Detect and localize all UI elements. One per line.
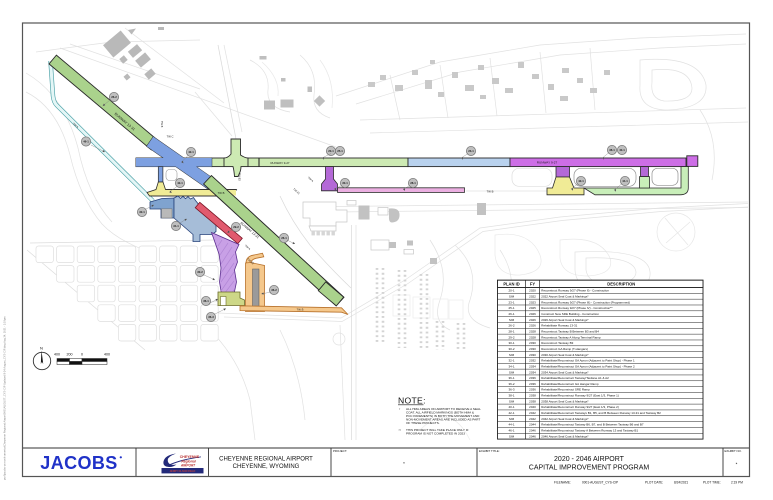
svg-text:36-2: 36-2 (271, 288, 277, 292)
svg-text:200: 200 (67, 353, 73, 357)
svg-text:Rehabilitate Runway 13-31: Rehabilitate Runway 13-31 (541, 324, 577, 328)
svg-text:2030: 2030 (529, 353, 536, 357)
svg-text:32-1: 32-1 (508, 359, 514, 363)
svg-text:Rehabilitate/Reconstruct Taxiw: Rehabilitate/Reconstruct Taxiway A Betwe… (541, 429, 638, 433)
svg-text:Rehabilitate/Reconstruct GA Ha: Rehabilitate/Reconstruct GA Hangar Ramp (541, 382, 599, 386)
svg-text:30-2: 30-2 (197, 270, 203, 274)
svg-text:23-1: 23-1 (508, 300, 514, 304)
svg-text:2042 Airport Seal Coat & Marki: 2042 Airport Seal Coat & Markings* (541, 417, 589, 421)
svg-text:2030: 2030 (529, 341, 536, 345)
svg-text:Rehabilitate/Reconstruct GA Ap: Rehabilitate/Reconstruct GA Apron (Adjac… (541, 364, 635, 368)
svg-text:400: 400 (54, 353, 60, 357)
svg-text:46-1: 46-1 (83, 140, 89, 144)
svg-text:42-1: 42-1 (177, 181, 183, 185)
svg-text:26-2: 26-2 (508, 324, 514, 328)
svg-text:PLOT DATE:: PLOT DATE: (645, 481, 663, 485)
svg-text:30-2: 30-2 (508, 347, 514, 351)
svg-text:CHEYENNE REGIONAL AIRPORT: CHEYENNE REGIONAL AIRPORT (219, 457, 313, 463)
svg-text:Reconstruct Runway 9/27 (Phase: Reconstruct Runway 9/27 (Phase IV) - Con… (541, 306, 613, 310)
svg-text:S/M: S/M (509, 370, 515, 374)
svg-text:DESCRIPTION: DESCRIPTION (607, 281, 635, 286)
svg-text:30-1: 30-1 (342, 181, 348, 185)
svg-text:2034: 2034 (529, 370, 536, 374)
svg-text:30-1: 30-1 (508, 341, 514, 345)
svg-text:PROGRAM IS NOT COMPLETED IN 20: PROGRAM IS NOT COMPLETED IN 2023 (406, 431, 465, 435)
svg-text:2036: 2036 (529, 382, 536, 386)
svg-text:TW B3: TW B3 (238, 173, 241, 181)
svg-text:RUNWAY 9-27: RUNWAY 9-27 (270, 161, 289, 165)
svg-text:CHEYENNE: CHEYENNE (180, 455, 200, 459)
svg-text:TW B: TW B (487, 189, 494, 193)
svg-text:Rehabilitate/Reconstruct GA Ap: Rehabilitate/Reconstruct GA Apron (Adjac… (541, 359, 635, 363)
svg-text:2030: 2030 (529, 347, 536, 351)
svg-text:2020 - 2046 AIRPORT: 2020 - 2046 AIRPORT (554, 456, 625, 463)
svg-text:34-1: 34-1 (508, 364, 514, 368)
svg-text:42-1: 42-1 (508, 411, 514, 415)
svg-text:Reconstruct GA Ramp (T-Hangars: Reconstruct GA Ramp (T-Hangars) (541, 347, 588, 351)
svg-text:28-1: 28-1 (410, 181, 416, 185)
svg-text:FY: FY (530, 281, 536, 286)
svg-text:44-1: 44-1 (508, 423, 514, 427)
svg-text:2042: 2042 (529, 417, 536, 421)
svg-text:JACOBS: JACOBS (40, 453, 117, 473)
svg-text:2020: 2020 (529, 289, 536, 293)
svg-text:26-2: 26-2 (111, 95, 117, 99)
svg-text:40-1: 40-1 (619, 148, 625, 152)
svg-text:0: 0 (81, 353, 83, 357)
svg-text:38-1: 38-1 (508, 394, 514, 398)
svg-text:PLAN ID: PLAN ID (503, 281, 519, 286)
svg-text:0001-AUGUST_CYS-CIP: 0001-AUGUST_CYS-CIP (582, 481, 618, 485)
svg-text:Rehabilitate/Reconstruct Taxiw: Rehabilitate/Reconstruct Taxiway B6, B7,… (541, 423, 644, 427)
svg-text:2:19 PM: 2:19 PM (731, 481, 743, 485)
svg-text:26-1: 26-1 (281, 236, 287, 240)
svg-text:JERRY OLSON FIELD: JERRY OLSON FIELD (170, 470, 196, 473)
svg-text:2046: 2046 (529, 434, 536, 438)
svg-text:2022 Airport Seal Coat & Marki: 2022 Airport Seal Coat & Markings* (541, 294, 589, 298)
svg-text:2026: 2026 (529, 324, 536, 328)
svg-text:2038: 2038 (529, 394, 536, 398)
svg-text:EXHIBIT NO.: EXHIBIT NO. (725, 449, 742, 453)
svg-text:CAPITAL IMPROVEMENT PROGRAM: CAPITAL IMPROVEMENT PROGRAM (529, 465, 650, 472)
svg-text:Reconstruct Taxiway A Along Te: Reconstruct Taxiway A Along Terminal Ram… (541, 335, 601, 339)
svg-text:2026: 2026 (529, 318, 536, 322)
svg-text:2042: 2042 (529, 411, 536, 415)
svg-text:36-3: 36-3 (208, 315, 214, 319)
svg-text:N: N (40, 346, 43, 351)
svg-text:PLOT TIME:: PLOT TIME: (703, 481, 721, 485)
svg-text:20-1: 20-1 (328, 149, 334, 153)
svg-text:TW B: TW B (160, 121, 163, 128)
svg-text:PROJECT:: PROJECT: (333, 449, 347, 453)
svg-text:TW C: TW C (167, 135, 174, 139)
svg-text:2040: 2040 (529, 405, 536, 409)
svg-text:Rehabilitate/Reconstruct Runwa: Rehabilitate/Reconstruct Runway 9/27 (Ea… (541, 394, 619, 398)
svg-text:*: * (736, 462, 738, 467)
svg-text:2034 Airport Seal Coat & Marki: 2034 Airport Seal Coat & Markings* (541, 370, 589, 374)
svg-text:Construct New SRE Building - C: Construct New SRE Building - Constructio… (541, 312, 599, 316)
svg-text:2028: 2028 (529, 329, 536, 333)
svg-text:26-1: 26-1 (508, 312, 514, 316)
svg-text:S/M: S/M (509, 434, 515, 438)
svg-text:2038: 2038 (529, 399, 536, 403)
svg-text:TW B: TW B (218, 191, 225, 195)
svg-text:NOTE:: NOTE: (398, 396, 426, 406)
svg-text:2030 Airport Seal Coat & Marki: 2030 Airport Seal Coat & Markings* (541, 353, 589, 357)
svg-text:25-1: 25-1 (508, 306, 514, 310)
svg-text:40-1: 40-1 (508, 405, 514, 409)
svg-text:32-1: 32-1 (139, 210, 145, 214)
svg-text:36-2: 36-2 (508, 382, 514, 386)
svg-text:2046: 2046 (529, 429, 536, 433)
svg-text:20-1: 20-1 (508, 289, 514, 293)
svg-text:36-1: 36-1 (508, 376, 514, 380)
svg-text:8/24/2021: 8/24/2021 (674, 481, 688, 485)
svg-text:2046 Airport Seal Coat & Marki: 2046 Airport Seal Coat & Markings* (541, 434, 589, 438)
svg-text:EXHIBIT TITLE:: EXHIBIT TITLE: (479, 449, 500, 453)
svg-text:AIRPORT: AIRPORT (180, 464, 196, 468)
svg-text:S/M: S/M (509, 294, 515, 298)
svg-text:Reconstruct Taxiway B Between: Reconstruct Taxiway B Between B3 and B4 (541, 329, 599, 333)
svg-text:Rehabilitate/Reconstruct SRE R: Rehabilitate/Reconstruct SRE Ramp (541, 388, 590, 392)
svg-text:TW B: TW B (297, 307, 304, 311)
svg-text:44-1: 44-1 (622, 179, 628, 183)
svg-text:S/M: S/M (509, 318, 515, 322)
svg-text:23-1: 23-1 (468, 149, 474, 153)
svg-text:pw:\\jacobs-us-north-america\C: pw:\\jacobs-us-north-america\Cheyenne Re… (3, 316, 7, 480)
svg-text:Reconstruct Runway 9/27 (Phase: Reconstruct Runway 9/27 (Phase III) - Co… (541, 300, 630, 304)
svg-text:36-1: 36-1 (203, 299, 209, 303)
svg-text:36-3: 36-3 (508, 388, 514, 392)
svg-text:34-1: 34-1 (173, 224, 179, 228)
svg-text:2036: 2036 (529, 376, 536, 380)
svg-text:28-1: 28-1 (508, 329, 514, 333)
svg-text:2026 Airport Seal Coat & Marki: 2026 Airport Seal Coat & Markings* (541, 318, 589, 322)
svg-text:Rehabilitate/Reconstruct Runwa: Rehabilitate/Reconstruct Runway 9/27 (Ea… (541, 405, 619, 409)
svg-text:Reconstruct Runway 9/27 (Phase: Reconstruct Runway 9/27 (Phase II) - Con… (541, 289, 609, 293)
svg-text:FILENAME:: FILENAME: (554, 481, 571, 485)
svg-text:42-1: 42-1 (188, 150, 194, 154)
svg-text:S/M: S/M (509, 399, 515, 403)
svg-text:29-2: 29-2 (233, 225, 239, 229)
svg-text:Reconstruct Taxiway B3: Reconstruct Taxiway B3 (541, 341, 573, 345)
svg-text:2023: 2023 (529, 300, 536, 304)
svg-text:2028: 2028 (529, 335, 536, 339)
svg-text:CHEYENNE, WYOMING: CHEYENNE, WYOMING (233, 464, 300, 470)
svg-text:2022: 2022 (529, 294, 536, 298)
svg-text:S/M: S/M (509, 353, 515, 357)
svg-text:Rehabilitate/Reconstruct Taxiw: Rehabilitate/Reconstruct Taxiway/Taxilan… (541, 376, 609, 380)
svg-text:2034: 2034 (529, 364, 536, 368)
svg-text:400: 400 (104, 353, 110, 357)
svg-text:42-1: 42-1 (578, 179, 584, 183)
svg-text:2026: 2026 (529, 312, 536, 316)
svg-text:25-1: 25-1 (337, 149, 343, 153)
svg-text:38-1: 38-1 (609, 148, 615, 152)
svg-text:RUNWAY 9-27: RUNWAY 9-27 (537, 161, 558, 165)
svg-text:2036: 2036 (529, 388, 536, 392)
svg-text:2038 Airport Seal Coat & Marki: 2038 Airport Seal Coat & Markings* (541, 399, 589, 403)
svg-text:S/M: S/M (509, 417, 515, 421)
svg-text:29-2: 29-2 (508, 335, 514, 339)
svg-text:2044: 2044 (529, 423, 536, 427)
svg-text:*: * (403, 461, 405, 466)
svg-text:OF THESE PROJECTS.: OF THESE PROJECTS. (406, 421, 440, 425)
svg-text:46-1: 46-1 (508, 429, 514, 433)
svg-text:Rehabilitate/Reconstruct Taxiw: Rehabilitate/Reconstruct Taxiways B1, B5… (541, 411, 661, 415)
svg-text:2032: 2032 (529, 359, 536, 363)
svg-text:2025: 2025 (529, 306, 536, 310)
